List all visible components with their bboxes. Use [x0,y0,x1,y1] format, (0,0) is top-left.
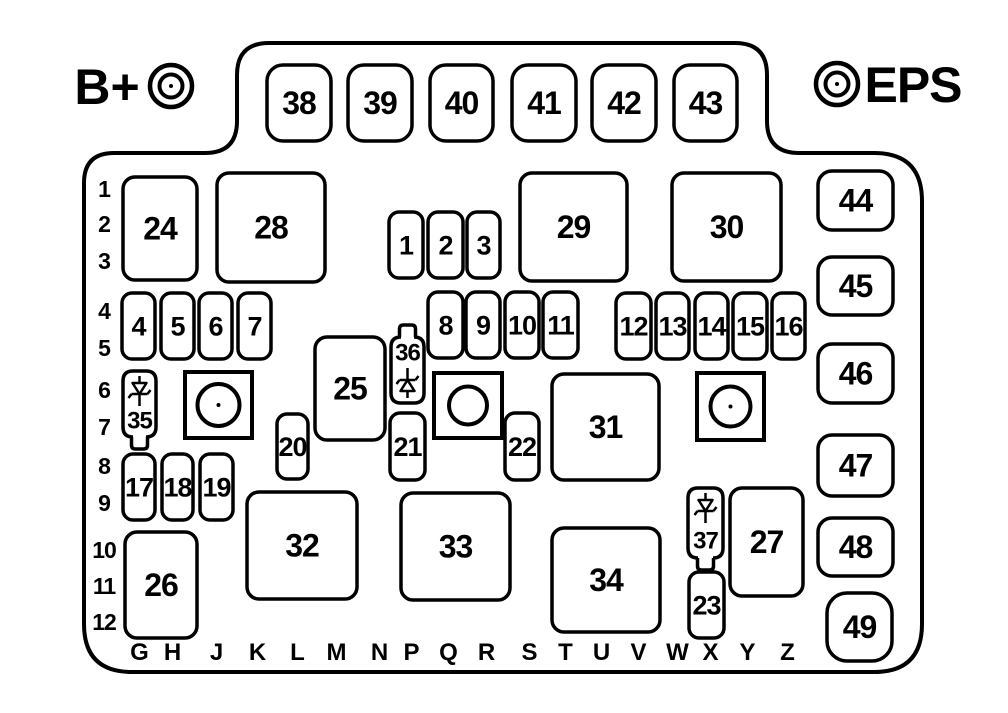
column-label-W: W [666,639,689,666]
fuse-42-label: 42 [607,85,641,121]
bplus-terminal-icon [150,65,192,107]
fuse-17-label: 17 [125,472,153,502]
column-label-T: T [558,639,573,666]
fuse-11-label: 11 [547,310,575,340]
relay-socket-2 [434,373,502,438]
fuse-5-label: 5 [170,311,185,341]
fuse-box-diagram-canvas: B+ EPS 383940414243444546474849242829302… [0,0,1008,713]
fuse-30-label: 30 [710,209,744,245]
row-label-7: 7 [98,414,110,440]
fuse-13-label: 13 [658,311,687,341]
fuse-1-label: 1 [399,230,414,260]
relay-dot-3 [729,405,733,409]
fuse-25-label: 25 [333,371,367,407]
fuse-26-label: 26 [144,567,178,603]
column-label-Y: Y [739,639,755,666]
row-label-9: 9 [98,490,110,516]
fuse-27-label: 27 [750,524,784,560]
fuse-20-label: 20 [278,432,306,462]
column-label-L: L [290,639,304,666]
row-label-11: 11 [93,573,117,599]
fuse-9-label: 9 [476,310,491,340]
fuse-38-label: 38 [282,85,316,121]
fuse-21-label: 21 [393,432,422,462]
diode-35-label: 35 [127,407,152,434]
fuse-31-label: 31 [589,409,623,445]
fuse-41-label: 41 [527,85,561,121]
bplus-label: B+ [74,59,139,115]
fuse-6-label: 6 [208,311,223,341]
fuse-49-label: 49 [843,609,877,645]
fuse-19-label: 19 [202,472,231,502]
column-label-V: V [630,639,646,666]
fuse-16-label: 16 [774,311,803,341]
row-label-2: 2 [98,211,110,237]
fuse-14-label: 14 [697,311,726,341]
fuse-10-label: 10 [508,310,536,340]
fuse-44-label: 44 [839,183,874,219]
fuse-7-label: 7 [247,311,261,341]
fuse-48-label: 48 [839,529,873,565]
row-label-3: 3 [98,248,110,274]
fuse-46-label: 46 [839,356,873,392]
row-label-6: 6 [98,377,110,403]
eps-terminal-icon [816,63,858,105]
fuse-2-label: 2 [438,230,452,260]
fuse-39-label: 39 [363,85,397,121]
diode-36-label: 36 [395,339,420,366]
column-label-J: J [210,639,222,666]
column-label-U: U [593,639,609,666]
fuse-22-label: 22 [508,432,536,462]
column-label-K: K [249,639,267,666]
column-label-P: P [403,639,419,666]
diode-37-label: 37 [693,527,718,554]
fuse-32-label: 32 [285,528,319,564]
relay-dot-1 [217,403,221,407]
fuse-28-label: 28 [254,210,288,246]
fuse-18-label: 18 [163,472,192,502]
column-label-Z: Z [780,639,794,666]
fuse-24-label: 24 [143,211,178,247]
fuse-43-label: 43 [689,85,723,121]
column-label-M: M [327,639,346,666]
fuse-box-diagram: B+ EPS 383940414243444546474849242829302… [0,0,1008,713]
column-label-R: R [478,639,495,666]
row-label-12: 12 [92,609,116,635]
fuse-4-label: 4 [131,311,146,341]
row-label-1: 1 [98,176,111,202]
column-label-H: H [164,639,180,666]
fuse-29-label: 29 [557,209,591,245]
row-label-10: 10 [92,537,116,563]
column-label-N: N [371,639,387,666]
column-label-G: G [130,639,148,666]
column-label-Q: Q [439,639,457,666]
fuse-40-label: 40 [445,85,479,121]
row-label-8: 8 [98,453,111,479]
row-label-4: 4 [98,298,111,324]
column-label-S: S [521,639,537,666]
row-label-5: 5 [98,335,111,361]
fuse-3-label: 3 [476,230,491,260]
fuse-12-label: 12 [619,311,647,341]
fuse-23-label: 23 [692,590,721,620]
fuse-45-label: 45 [839,268,873,304]
column-label-X: X [702,639,718,666]
fuse-47-label: 47 [839,448,873,484]
fuse-34-label: 34 [589,562,624,598]
eps-label: EPS [864,57,961,113]
fuse-15-label: 15 [736,311,765,341]
fuse-8-label: 8 [438,310,453,340]
fuse-33-label: 33 [439,529,473,565]
